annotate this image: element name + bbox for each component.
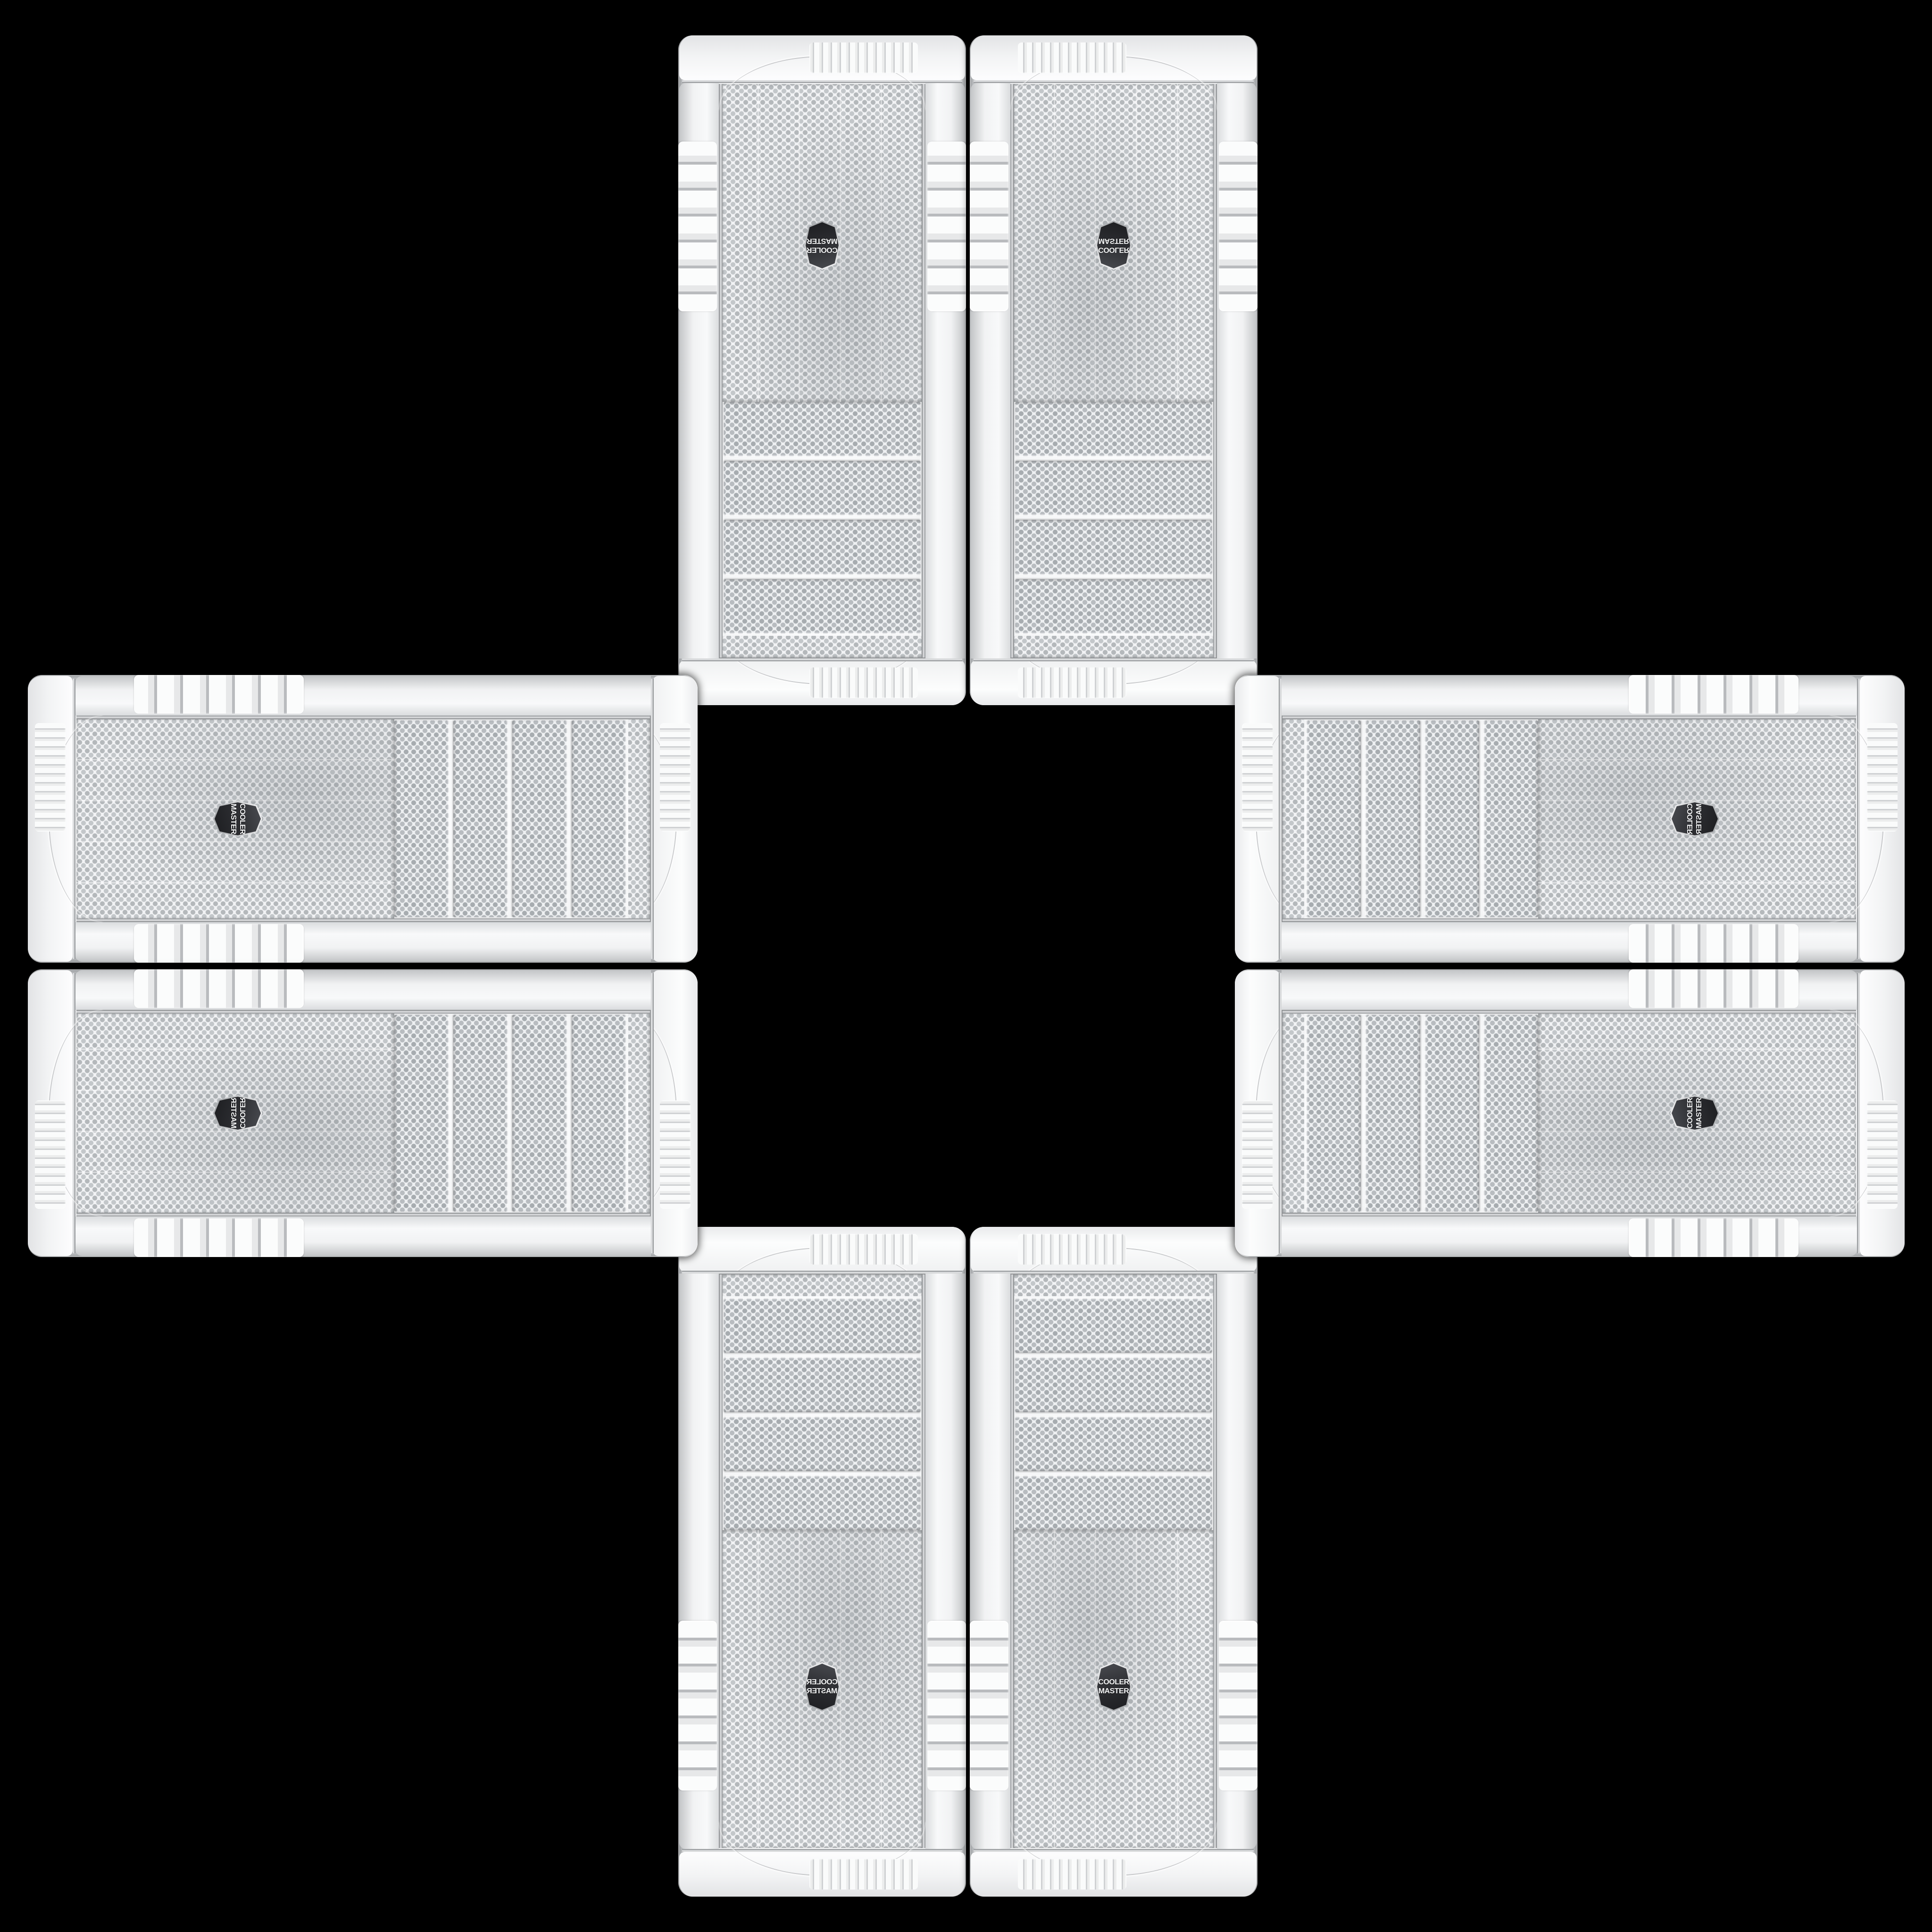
cooler-master-badge: COOLER MASTER (1670, 801, 1719, 837)
drive-bay-cover (1015, 402, 1212, 457)
chrome-strip-top (1279, 973, 1282, 1253)
chrome-rail-right (76, 918, 650, 922)
badge-text-line1: COOLER (238, 803, 247, 834)
side-trim-left (971, 1274, 1010, 1849)
drive-bay-cover (724, 1357, 921, 1412)
bezel-vent-ridges (35, 1100, 66, 1209)
intake-mesh: COOLER MASTER (723, 84, 922, 402)
cooler-master-logo-icon: COOLER MASTER (806, 222, 839, 268)
bezel-vent-ridges (1018, 1859, 1126, 1890)
case-front-panel: COOLER MASTER (1235, 969, 1905, 1257)
drive-bay-cover (724, 461, 921, 516)
side-vent-fins (134, 675, 304, 714)
chrome-rail-left (1010, 84, 1014, 658)
top-bezel (971, 1227, 1257, 1272)
drive-bay-stack (723, 402, 922, 636)
cooler-master-badge: COOLER MASTER (1096, 1662, 1132, 1711)
chrome-rail-right (1282, 918, 1856, 922)
bottom-bezel (1860, 676, 1905, 962)
side-vent-fins (134, 1218, 304, 1257)
mesh-strip (723, 1274, 922, 1296)
top-bezel (679, 660, 965, 705)
top-bezel (653, 970, 698, 1256)
bezel-vent-ridges (35, 723, 66, 832)
cooler-master-logo-icon: COOLER MASTER (1672, 802, 1718, 835)
chrome-strip-top (1279, 679, 1282, 959)
top-bezel (971, 660, 1257, 705)
drive-bay-cover (572, 720, 626, 917)
front-mesh-panel: COOLER MASTER (723, 84, 922, 658)
top-bezel (1235, 970, 1280, 1256)
chrome-rail-left (1282, 716, 1856, 719)
cooler-master-logo-icon: COOLER MASTER (215, 1097, 261, 1130)
drive-bay-cover (1365, 1015, 1420, 1212)
badge-text-line1: COOLER (238, 1098, 247, 1128)
cooler-master-badge: COOLER MASTER (804, 221, 840, 270)
drive-bay-cover (1365, 720, 1420, 917)
chrome-rail-left (922, 84, 925, 658)
side-vent-fins (1629, 1218, 1799, 1257)
drive-bay-cover (1424, 1015, 1479, 1212)
intake-mesh: COOLER MASTER (1538, 719, 1856, 918)
chrome-rail-left (922, 1274, 925, 1848)
side-vent-fins (1629, 969, 1799, 1008)
side-vent-fins (678, 142, 717, 311)
drive-bay-cover (453, 1015, 508, 1212)
front-mesh-panel: COOLER MASTER (1014, 1274, 1213, 1848)
side-vent-fins (1629, 924, 1799, 963)
cooler-master-logo-icon: COOLER MASTER (1672, 1097, 1718, 1130)
drive-bay-cover (394, 720, 449, 917)
front-mesh-panel: COOLER MASTER (723, 1274, 922, 1848)
drive-bay-cover (724, 1416, 921, 1471)
bezel-vent-ridges (1242, 1100, 1273, 1209)
cooler-master-badge: COOLER MASTER (213, 1095, 262, 1131)
side-vent-fins (134, 924, 304, 963)
intake-mesh: COOLER MASTER (76, 1014, 394, 1213)
drive-bay-cover (1015, 520, 1212, 575)
cooler-master-badge: COOLER MASTER (1096, 221, 1132, 270)
side-trim-left (75, 1216, 651, 1256)
front-mesh-panel: COOLER MASTER (1014, 84, 1213, 658)
chrome-rail-right (719, 84, 723, 658)
side-vent-fins (970, 142, 1008, 311)
case-front-panel: COOLER MASTER (970, 1227, 1257, 1897)
bezel-vent-ridges (809, 1859, 918, 1890)
drive-bay-stack (1014, 1296, 1213, 1530)
bottom-bezel (679, 1852, 965, 1897)
chrome-rail-left (1282, 1213, 1856, 1216)
drive-bay-cover (1015, 1416, 1212, 1471)
bottom-bezel (28, 970, 73, 1256)
mesh-strip (1014, 1274, 1213, 1296)
badge-text-line2: MASTER (807, 236, 838, 245)
intake-mesh: COOLER MASTER (1014, 84, 1213, 402)
front-mesh-panel: COOLER MASTER (76, 1014, 650, 1213)
cooler-master-badge: COOLER MASTER (804, 1662, 840, 1711)
mesh-strip (1014, 636, 1213, 658)
badge-text-line1: COOLER (1098, 245, 1129, 254)
bezel-vent-ridges (809, 1234, 918, 1265)
side-vent-fins (1219, 142, 1257, 311)
chrome-strip-top (974, 1271, 1254, 1274)
chrome-strip-top (974, 658, 1254, 661)
side-vent-fins (134, 969, 304, 1008)
chrome-rail-right (76, 1010, 650, 1014)
badge-text-line2: MASTER (229, 1098, 238, 1129)
badge-text-line2: MASTER (229, 804, 238, 834)
side-trim-left (971, 83, 1010, 658)
top-bezel (1235, 676, 1280, 962)
bottom-bezel (971, 1852, 1257, 1897)
chrome-rail-left (76, 716, 650, 719)
bottom-bezel (28, 676, 73, 962)
badge-text-line1: COOLER (1686, 803, 1695, 834)
drive-bay-cover (1015, 579, 1212, 634)
side-trim-left (75, 676, 651, 716)
drive-bay-stack (394, 719, 628, 918)
bezel-vent-ridges (1867, 723, 1898, 832)
chrome-rail-right (719, 1274, 723, 1848)
case-front-panel: COOLER MASTER (28, 675, 698, 963)
case-left-top: COOLER MASTER (28, 675, 698, 963)
badge-text-line2: MASTER (1695, 1098, 1704, 1129)
case-front-panel: COOLER MASTER (28, 969, 698, 1257)
chrome-rail-right (1282, 1010, 1856, 1014)
side-trim-right (75, 922, 651, 962)
drive-bay-stack (1014, 402, 1213, 636)
cooler-master-logo-icon: COOLER MASTER (1097, 222, 1130, 268)
drive-bay-cover (513, 720, 567, 917)
top-bezel (653, 676, 698, 962)
bezel-vent-ridges (1018, 42, 1126, 73)
drive-bay-cover (1306, 720, 1361, 917)
bezel-vent-ridges (1018, 667, 1126, 698)
side-trim-right (1282, 970, 1857, 1010)
side-vent-fins (927, 1621, 966, 1790)
side-trim-right (679, 83, 719, 658)
side-vent-fins (678, 1621, 717, 1790)
drive-bay-cover (1483, 720, 1538, 917)
drive-bay-cover (394, 1015, 449, 1212)
case-front-panel: COOLER MASTER (1235, 675, 1905, 963)
drive-bay-cover (453, 720, 508, 917)
badge-text-line2: MASTER (1695, 804, 1704, 834)
bezel-vent-ridges (1242, 723, 1273, 832)
badge-text-line1: COOLER (807, 1678, 837, 1687)
drive-bay-cover (572, 1015, 626, 1212)
case-bottom-right: COOLER MASTER (970, 1227, 1257, 1897)
intake-mesh: COOLER MASTER (1014, 1530, 1213, 1848)
cooler-master-badge: COOLER MASTER (213, 801, 262, 837)
chrome-strip-top (682, 658, 962, 661)
badge-text-line1: COOLER (1686, 1098, 1695, 1128)
front-mesh-panel: COOLER MASTER (1282, 1014, 1856, 1213)
front-mesh-panel: COOLER MASTER (1282, 719, 1856, 918)
intake-mesh: COOLER MASTER (1538, 1014, 1856, 1213)
side-vent-fins (1629, 675, 1799, 714)
cooler-master-logo-icon: COOLER MASTER (806, 1664, 839, 1710)
case-front-panel: COOLER MASTER (678, 35, 966, 705)
chrome-strip-top (650, 973, 654, 1253)
intake-mesh: COOLER MASTER (76, 719, 394, 918)
bezel-vent-ridges (1018, 1234, 1126, 1265)
case-bottom-left: COOLER MASTER (678, 1227, 966, 1897)
mesh-strip (1282, 1014, 1304, 1213)
bottom-bezel (1860, 970, 1905, 1256)
badge-text-line2: MASTER (1099, 236, 1129, 245)
badge-text-line1: COOLER (807, 245, 837, 254)
drive-bay-cover (724, 402, 921, 457)
case-left-bottom: COOLER MASTER (28, 969, 698, 1257)
side-vent-fins (1219, 1621, 1257, 1790)
drive-bay-cover (724, 579, 921, 634)
side-trim-right (679, 1274, 719, 1849)
mesh-strip (628, 719, 650, 918)
side-vent-fins (927, 142, 966, 311)
drive-bay-cover (1424, 720, 1479, 917)
drive-bay-cover (1015, 1298, 1212, 1353)
bezel-vent-ridges (809, 42, 918, 73)
cooler-master-logo-icon: COOLER MASTER (215, 802, 261, 835)
case-top-left: COOLER MASTER (678, 35, 966, 705)
side-trim-left (1282, 676, 1857, 716)
chrome-rail-right (1213, 84, 1217, 658)
chrome-strip-top (650, 679, 654, 959)
chrome-rail-right (1213, 1274, 1217, 1848)
drive-bay-stack (1304, 1014, 1538, 1213)
side-trim-right (1282, 922, 1857, 962)
bottom-bezel (679, 35, 965, 80)
top-bezel (679, 1227, 965, 1272)
bezel-vent-ridges (660, 1100, 691, 1209)
drive-bay-cover (1015, 461, 1212, 516)
bottom-bezel (971, 35, 1257, 80)
badge-text-line2: MASTER (1099, 1687, 1129, 1696)
drive-bay-stack (394, 1014, 628, 1213)
case-right-bottom: COOLER MASTER (1235, 969, 1905, 1257)
case-right-top: COOLER MASTER (1235, 675, 1905, 963)
cooler-master-badge: COOLER MASTER (1670, 1095, 1719, 1131)
drive-bay-cover (724, 520, 921, 575)
side-trim-right (75, 970, 651, 1010)
drive-bay-cover (1015, 1475, 1212, 1530)
intake-mesh: COOLER MASTER (723, 1530, 922, 1848)
drive-bay-cover (724, 1298, 921, 1353)
product-montage: COOLER MASTER (0, 0, 1932, 1932)
drive-bay-cover (724, 1475, 921, 1530)
side-trim-right (1217, 1274, 1257, 1849)
bezel-vent-ridges (660, 723, 691, 832)
drive-bay-cover (513, 1015, 567, 1212)
badge-text-line2: MASTER (807, 1687, 838, 1696)
front-mesh-panel: COOLER MASTER (76, 719, 650, 918)
bezel-vent-ridges (1867, 1100, 1898, 1209)
case-front-panel: COOLER MASTER (678, 1227, 966, 1897)
drive-bay-cover (1306, 1015, 1361, 1212)
side-trim-left (925, 83, 965, 658)
drive-bay-stack (723, 1296, 922, 1530)
cooler-master-logo-icon: COOLER MASTER (1097, 1664, 1130, 1710)
chrome-strip-top (682, 1271, 962, 1274)
drive-bay-stack (1304, 719, 1538, 918)
drive-bay-cover (1483, 1015, 1538, 1212)
chrome-rail-left (76, 1213, 650, 1216)
case-front-panel: COOLER MASTER (970, 35, 1257, 705)
mesh-strip (628, 1014, 650, 1213)
case-top-right: COOLER MASTER (970, 35, 1257, 705)
badge-text-line1: COOLER (1098, 1678, 1129, 1687)
mesh-strip (723, 636, 922, 658)
bezel-vent-ridges (809, 667, 918, 698)
side-vent-fins (970, 1621, 1008, 1790)
side-trim-right (1217, 83, 1257, 658)
side-trim-left (1282, 1216, 1857, 1256)
mesh-strip (1282, 719, 1304, 918)
chrome-rail-left (1010, 1274, 1014, 1848)
drive-bay-cover (1015, 1357, 1212, 1412)
side-trim-left (925, 1274, 965, 1849)
